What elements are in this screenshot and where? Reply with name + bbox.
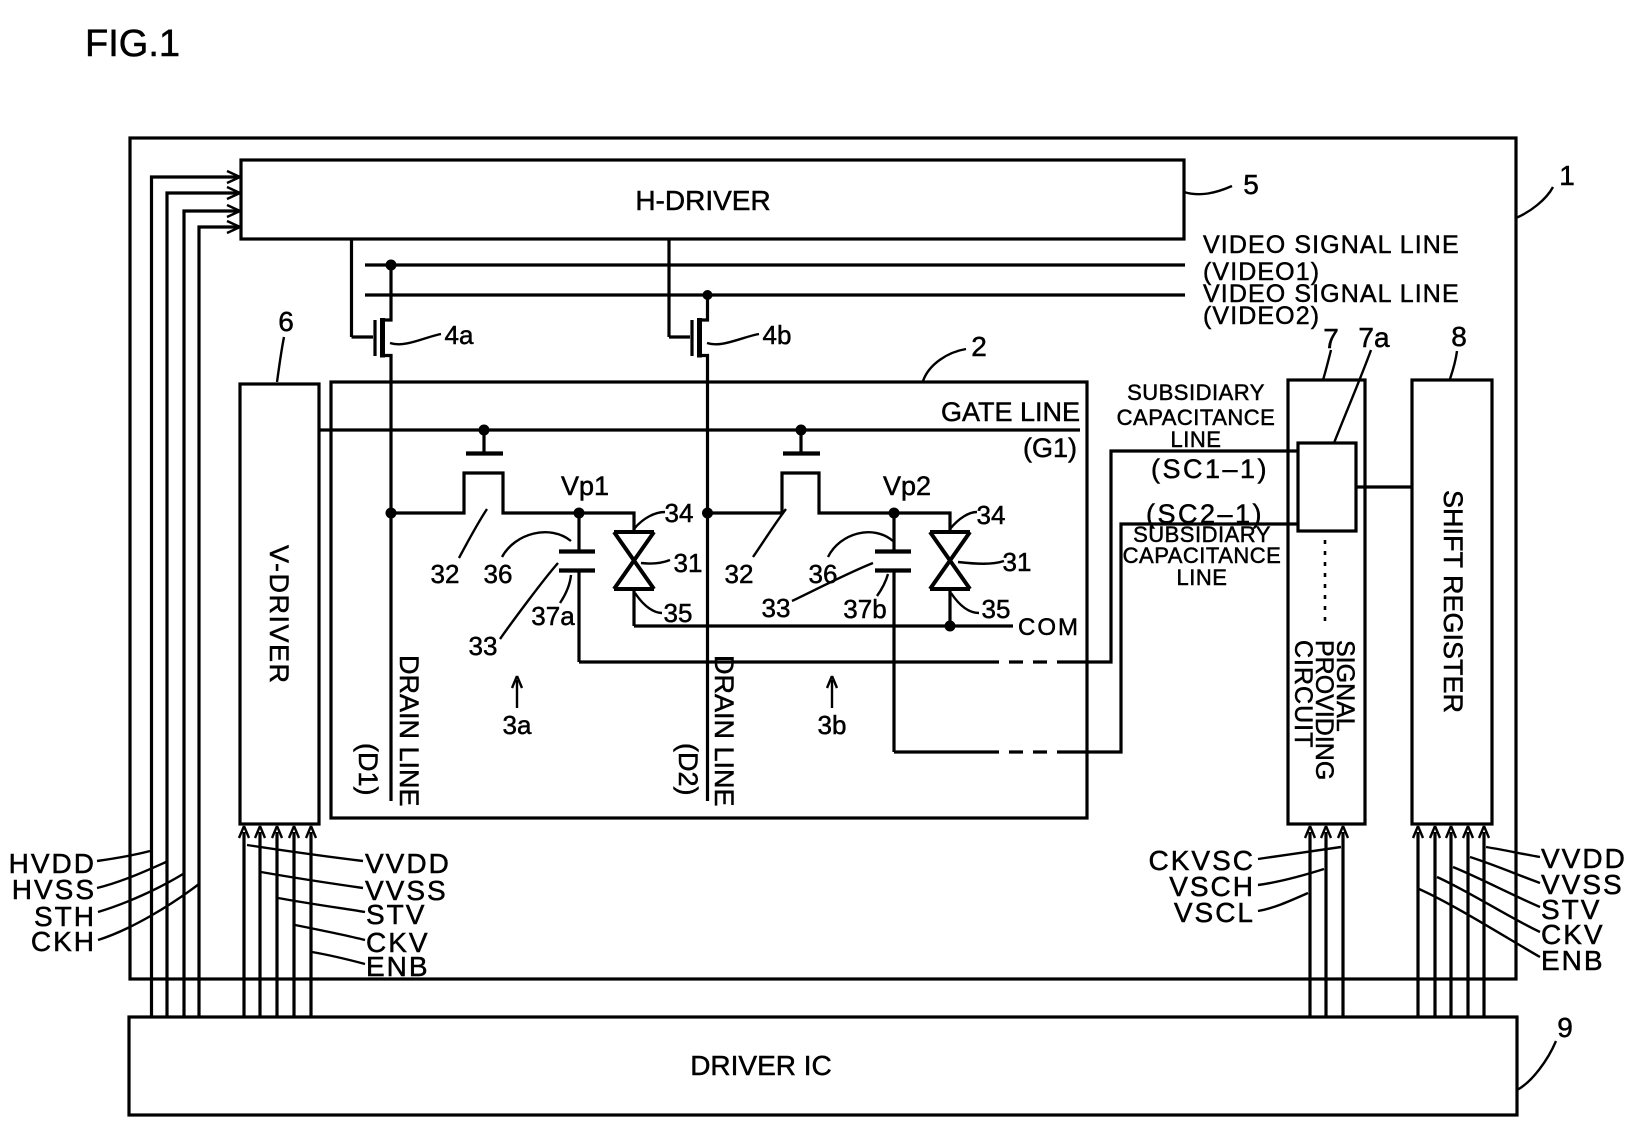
- svg-text:6: 6: [278, 306, 294, 337]
- svg-text:CKH: CKH: [31, 926, 96, 957]
- svg-text:DRAIN LINE: DRAIN LINE: [709, 655, 739, 807]
- svg-text:4a: 4a: [445, 320, 474, 350]
- svg-text:34: 34: [977, 500, 1006, 530]
- svg-text:31: 31: [674, 548, 703, 578]
- svg-text:35: 35: [982, 594, 1011, 624]
- svg-text:(G1): (G1): [1023, 433, 1077, 463]
- svg-text:H-DRIVER: H-DRIVER: [635, 185, 770, 216]
- svg-text:(SC1–1): (SC1–1): [1151, 454, 1269, 484]
- svg-text:37b: 37b: [843, 594, 886, 624]
- svg-text:FIG.1: FIG.1: [85, 23, 180, 65]
- svg-text:GATE LINE: GATE LINE: [941, 397, 1080, 427]
- svg-text:SUBSIDIARY: SUBSIDIARY: [1127, 380, 1265, 405]
- svg-text:8: 8: [1451, 321, 1467, 352]
- svg-text:(VIDEO2): (VIDEO2): [1203, 302, 1320, 330]
- svg-text:VIDEO SIGNAL LINE: VIDEO SIGNAL LINE: [1203, 231, 1460, 259]
- svg-text:33: 33: [469, 631, 498, 661]
- svg-text:31: 31: [1003, 547, 1032, 577]
- svg-text:LINE: LINE: [1171, 427, 1222, 452]
- svg-text:37a: 37a: [531, 601, 575, 631]
- svg-text:Vp1: Vp1: [561, 471, 609, 501]
- svg-text:LINE: LINE: [1177, 565, 1228, 590]
- svg-text:36: 36: [484, 559, 513, 589]
- svg-text:9: 9: [1557, 1012, 1573, 1043]
- svg-text:3a: 3a: [503, 710, 532, 740]
- svg-text:Vp2: Vp2: [883, 471, 931, 501]
- svg-text:(D2): (D2): [673, 743, 703, 796]
- svg-text:ENB: ENB: [1541, 945, 1605, 976]
- svg-text:33: 33: [762, 593, 791, 623]
- svg-text:5: 5: [1243, 169, 1259, 200]
- svg-text:7a: 7a: [1358, 322, 1390, 353]
- svg-text:(D1): (D1): [353, 743, 383, 796]
- svg-text:36: 36: [809, 559, 838, 589]
- svg-text:4b: 4b: [763, 320, 792, 350]
- svg-text:V-DRIVER: V-DRIVER: [264, 545, 294, 685]
- svg-text:32: 32: [431, 559, 460, 589]
- svg-text:3b: 3b: [818, 710, 847, 740]
- svg-text:SHIFT REGISTER: SHIFT REGISTER: [1438, 490, 1468, 713]
- svg-text:COM: COM: [1018, 614, 1080, 641]
- svg-text:32: 32: [725, 559, 754, 589]
- svg-text:1: 1: [1559, 160, 1575, 191]
- svg-text:VSCL: VSCL: [1174, 897, 1255, 928]
- svg-text:7: 7: [1323, 323, 1339, 354]
- svg-text:DRIVER IC: DRIVER IC: [690, 1050, 832, 1081]
- svg-text:35: 35: [664, 598, 693, 628]
- svg-text:CIRCUIT: CIRCUIT: [1289, 640, 1317, 748]
- svg-text:34: 34: [665, 498, 694, 528]
- svg-text:2: 2: [971, 331, 987, 362]
- svg-text:ENB: ENB: [366, 951, 430, 982]
- svg-text:DRAIN LINE: DRAIN LINE: [394, 655, 424, 807]
- svg-text:STV: STV: [366, 899, 426, 930]
